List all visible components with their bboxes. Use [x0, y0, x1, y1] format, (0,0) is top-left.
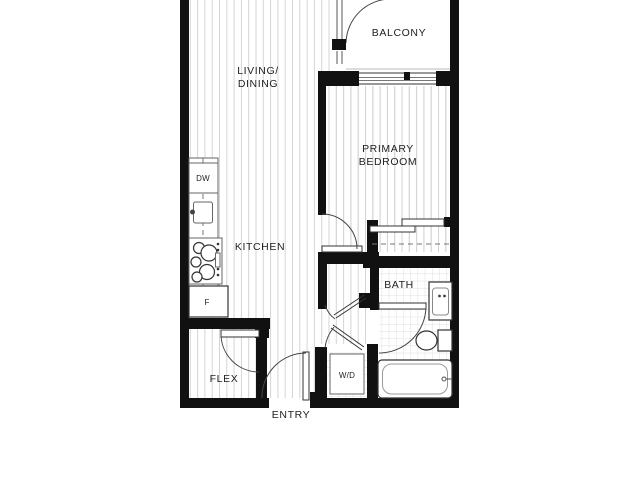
entry-label: ENTRY — [272, 409, 310, 421]
flex-east-wall — [256, 336, 267, 402]
primary-bedroom-label-line2: BEDROOM — [359, 156, 417, 168]
closet-sliding-door-2 — [370, 226, 415, 232]
bottom-wall-west — [180, 398, 269, 408]
bedroom-north-wall-east — [436, 71, 452, 86]
floor-plan-page: BALCONY LIVING/ DINING PRIMARY BEDROOM K… — [0, 0, 640, 480]
bedroom-window — [359, 71, 436, 86]
closet-track-cap — [444, 217, 453, 227]
primary-bedroom-label-line1: PRIMARY — [362, 143, 414, 155]
cooktop — [189, 238, 222, 284]
window-mullion — [404, 72, 410, 80]
dishwasher-label: DW — [196, 174, 210, 183]
living-bedroom-divider-wall — [318, 71, 326, 215]
bathtub — [378, 360, 452, 398]
linen-closet-west-wall — [318, 252, 327, 309]
washer-dryer-label: W/D — [339, 371, 355, 380]
closet-sliding-door-1 — [402, 219, 444, 226]
balcony-label: BALCONY — [372, 27, 426, 39]
bottom-wall-east — [310, 398, 459, 408]
balcony-post — [332, 39, 346, 50]
bath-west-post — [367, 344, 378, 403]
living-dining-label-line2: DINING — [238, 78, 278, 90]
flex-label: FLEX — [210, 373, 239, 385]
living-dining-label-line1: LIVING/ — [237, 65, 279, 77]
laundry-west-wall — [315, 347, 327, 402]
fridge-label: F — [204, 298, 209, 307]
floor-plan: BALCONY LIVING/ DINING PRIMARY BEDROOM K… — [0, 0, 640, 480]
kitchen-label: KITCHEN — [235, 241, 285, 253]
toilet — [416, 330, 452, 351]
vanity-sink — [429, 282, 452, 320]
kitchen-sink — [190, 202, 213, 223]
left-exterior-wall — [180, 0, 189, 408]
bath-label: BATH — [384, 279, 414, 291]
bath-north-wall — [363, 256, 459, 268]
